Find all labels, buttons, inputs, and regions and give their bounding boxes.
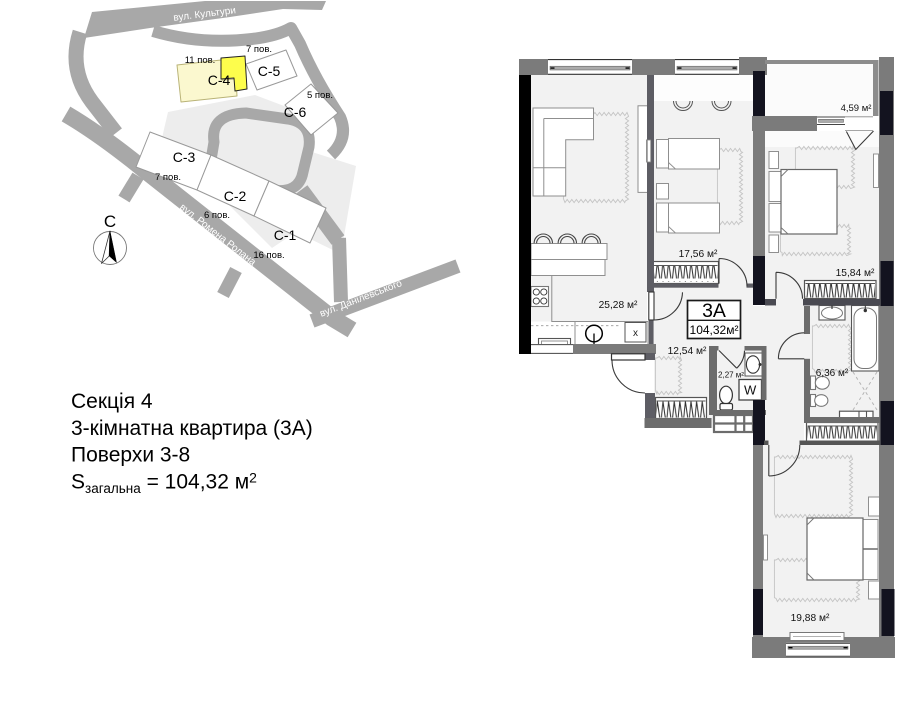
svg-text:С-6: С-6 xyxy=(284,104,307,120)
svg-text:Sзагальна = 104,32 м2: Sзагальна = 104,32 м2 xyxy=(71,470,257,497)
svg-text:19,88 м²: 19,88 м² xyxy=(791,613,830,624)
svg-text:3А: 3А xyxy=(702,300,726,322)
svg-text:4,59 м²: 4,59 м² xyxy=(841,103,872,114)
svg-text:7 пов.: 7 пов. xyxy=(246,44,272,55)
svg-text:3-кімнатна квартира (3А): 3-кімнатна квартира (3А) xyxy=(71,417,313,440)
svg-text:С: С xyxy=(104,212,116,231)
svg-text:6,36 м²: 6,36 м² xyxy=(816,368,849,379)
svg-text:С-3: С-3 xyxy=(173,149,196,165)
svg-text:17,56 м²: 17,56 м² xyxy=(679,249,718,260)
svg-text:вул. Данілевського: вул. Данілевського xyxy=(318,278,404,320)
svg-text:С-1: С-1 xyxy=(274,227,297,243)
svg-text:5 пов.: 5 пов. xyxy=(307,90,333,101)
svg-text:104,32м²: 104,32м² xyxy=(690,323,739,337)
svg-text:2,27 м²: 2,27 м² xyxy=(718,371,744,380)
svg-text:16 пов.: 16 пов. xyxy=(253,250,284,261)
svg-text:7 пов.: 7 пов. xyxy=(155,172,181,183)
svg-text:12,54 м²: 12,54 м² xyxy=(668,346,707,357)
svg-text:11 пов.: 11 пов. xyxy=(185,55,216,66)
svg-text:Секція 4: Секція 4 xyxy=(71,390,153,413)
svg-text:С-2: С-2 xyxy=(224,188,247,204)
svg-text:25,28 м²: 25,28 м² xyxy=(599,300,638,311)
svg-text:С-5: С-5 xyxy=(258,63,281,79)
svg-text:15,84 м²: 15,84 м² xyxy=(836,268,875,279)
svg-text:x: x xyxy=(633,328,638,339)
svg-text:Поверхи 3-8: Поверхи 3-8 xyxy=(71,444,190,467)
svg-text:С-4: С-4 xyxy=(208,72,231,88)
svg-text:W: W xyxy=(744,383,757,398)
